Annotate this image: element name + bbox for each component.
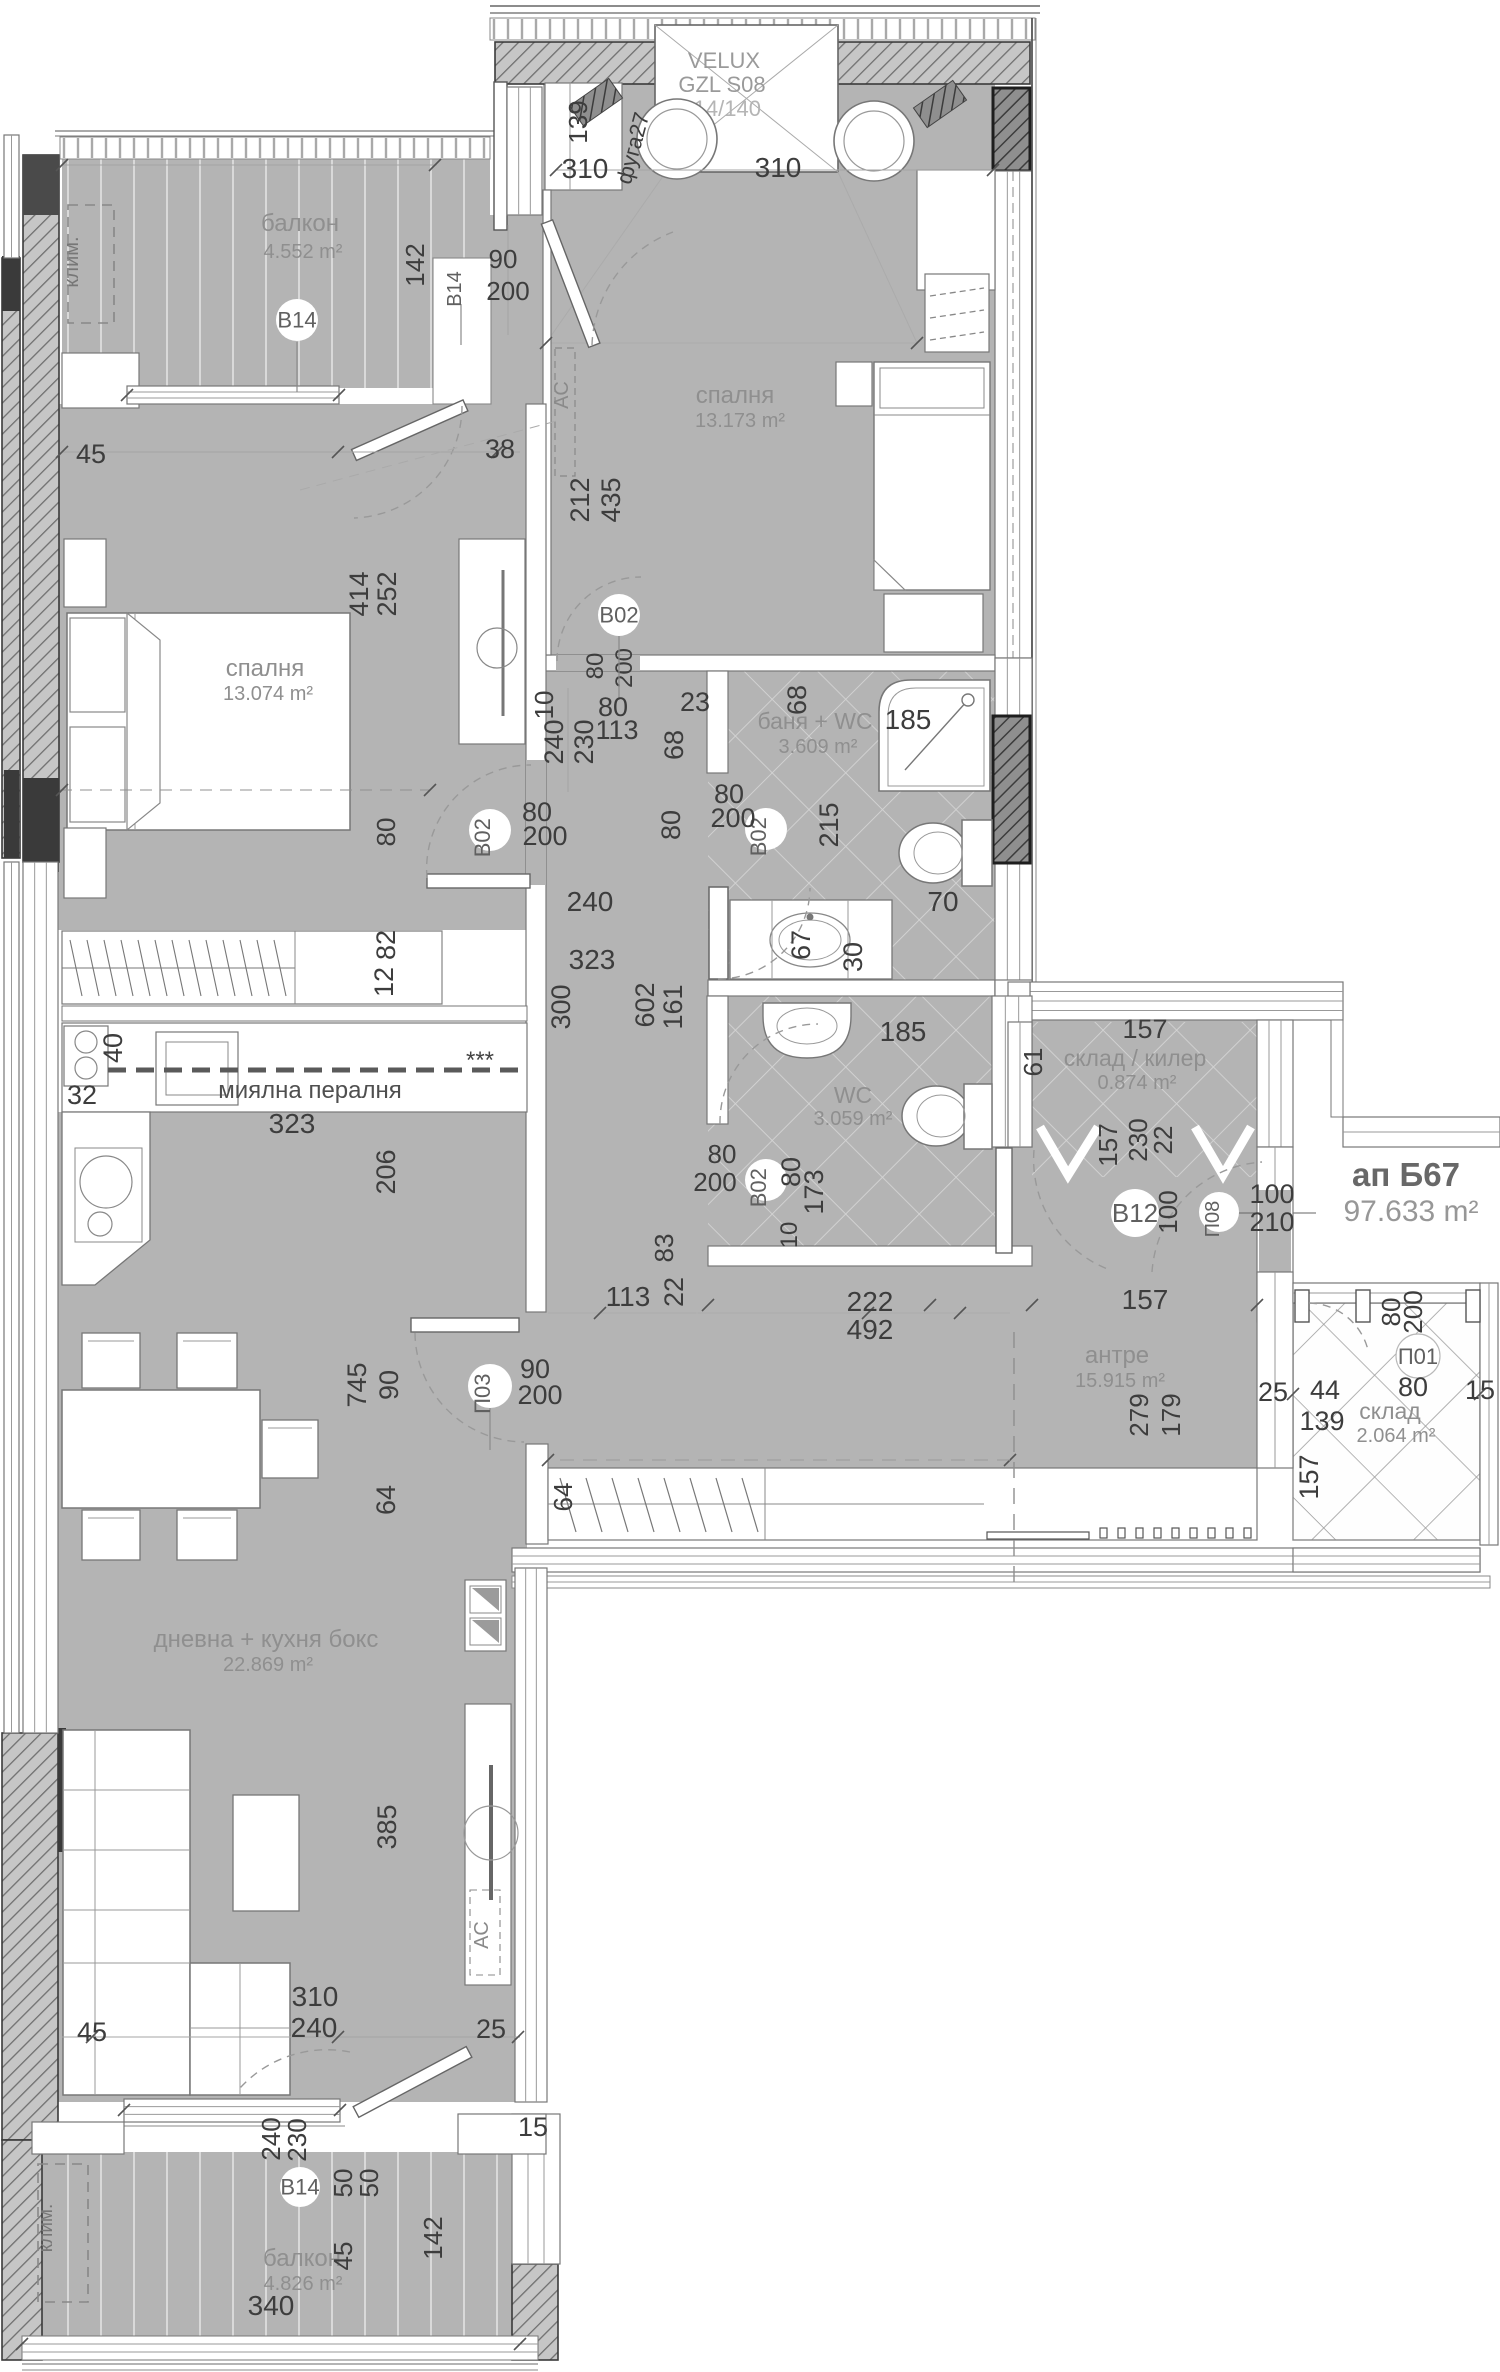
svg-text:61: 61 xyxy=(1018,1048,1048,1077)
svg-text:139: 139 xyxy=(563,100,593,143)
svg-text:340: 340 xyxy=(248,2290,295,2321)
svg-text:310: 310 xyxy=(292,1981,339,2012)
svg-text:***: *** xyxy=(466,1047,494,1074)
svg-text:157: 157 xyxy=(1294,1454,1324,1499)
svg-text:клим.: клим. xyxy=(36,2204,57,2253)
svg-text:222: 222 xyxy=(847,1286,894,1317)
svg-text:44: 44 xyxy=(1310,1375,1340,1405)
svg-text:AC: AC xyxy=(551,381,573,409)
svg-text:83: 83 xyxy=(649,1234,679,1263)
svg-text:спалня: спалня xyxy=(696,382,775,409)
svg-text:25: 25 xyxy=(476,2014,506,2044)
svg-text:3.609 m²: 3.609 m² xyxy=(779,736,858,758)
svg-text:200: 200 xyxy=(611,648,638,688)
svg-text:B14: B14 xyxy=(277,308,316,333)
svg-text:161: 161 xyxy=(658,984,688,1029)
svg-text:0.874 m²: 0.874 m² xyxy=(1098,1072,1177,1094)
svg-text:492: 492 xyxy=(847,1314,894,1345)
svg-text:22: 22 xyxy=(659,1277,689,1307)
svg-text:80: 80 xyxy=(1398,1372,1428,1402)
svg-text:дневна + кухня бокс: дневна + кухня бокс xyxy=(154,1626,379,1653)
svg-text:142: 142 xyxy=(400,243,430,286)
svg-text:25: 25 xyxy=(1258,1377,1288,1407)
svg-text:клим.: клим. xyxy=(61,236,83,287)
svg-text:252: 252 xyxy=(372,571,402,616)
svg-text:П01: П01 xyxy=(1398,1344,1438,1369)
svg-text:240: 240 xyxy=(291,2012,338,2043)
svg-text:179: 179 xyxy=(1156,1393,1186,1436)
svg-text:B02: B02 xyxy=(746,1168,771,1207)
svg-text:100: 100 xyxy=(1249,1179,1294,1209)
svg-text:240: 240 xyxy=(567,886,614,917)
svg-text:10: 10 xyxy=(776,1222,803,1249)
svg-text:200: 200 xyxy=(486,276,529,306)
svg-text:142: 142 xyxy=(418,2216,448,2259)
svg-text:22.869 m²: 22.869 m² xyxy=(223,1654,313,1676)
svg-text:15.915 m²: 15.915 m² xyxy=(1075,1370,1165,1392)
svg-text:80: 80 xyxy=(371,818,401,847)
svg-text:212: 212 xyxy=(565,477,595,522)
svg-text:спалня: спалня xyxy=(226,655,305,682)
svg-text:210: 210 xyxy=(1249,1207,1294,1237)
svg-text:185: 185 xyxy=(880,1016,927,1047)
svg-text:157: 157 xyxy=(1122,1014,1167,1044)
svg-text:323: 323 xyxy=(269,1108,316,1139)
svg-text:279: 279 xyxy=(1124,1393,1154,1436)
svg-text:414: 414 xyxy=(344,571,374,616)
svg-text:П08: П08 xyxy=(1202,1201,1224,1238)
svg-text:157: 157 xyxy=(1093,1123,1123,1166)
svg-text:12: 12 xyxy=(369,967,399,997)
svg-text:97.633 m²: 97.633 m² xyxy=(1343,1195,1478,1228)
svg-text:745: 745 xyxy=(342,1362,372,1407)
svg-text:50: 50 xyxy=(354,2169,384,2198)
svg-text:68: 68 xyxy=(659,730,689,760)
svg-text:VELUX: VELUX xyxy=(688,48,760,73)
svg-text:П03: П03 xyxy=(470,1374,495,1414)
svg-text:38: 38 xyxy=(485,434,515,464)
svg-text:30: 30 xyxy=(838,942,868,972)
svg-text:200: 200 xyxy=(693,1167,736,1197)
svg-text:67: 67 xyxy=(786,930,816,960)
svg-text:173: 173 xyxy=(799,1169,829,1214)
svg-text:385: 385 xyxy=(372,1804,402,1849)
svg-text:602: 602 xyxy=(630,982,660,1027)
svg-text:45: 45 xyxy=(77,2017,107,2047)
svg-text:435: 435 xyxy=(596,477,626,522)
svg-text:GZL S08: GZL S08 xyxy=(678,72,765,97)
svg-text:3.059 m²: 3.059 m² xyxy=(814,1108,893,1130)
svg-text:склад / килер: склад / килер xyxy=(1064,1045,1207,1071)
svg-text:миялна пералня: миялна пералня xyxy=(218,1077,401,1104)
svg-text:B14: B14 xyxy=(280,2175,319,2200)
svg-text:80: 80 xyxy=(582,653,609,680)
svg-text:90: 90 xyxy=(374,1370,404,1400)
svg-text:230: 230 xyxy=(282,2118,312,2161)
svg-text:82: 82 xyxy=(371,930,401,960)
svg-text:113: 113 xyxy=(606,1281,651,1312)
svg-text:23: 23 xyxy=(680,687,710,717)
svg-text:13.074 m²: 13.074 m² xyxy=(223,683,313,705)
svg-text:200: 200 xyxy=(1398,1290,1428,1333)
svg-text:антре: антре xyxy=(1085,1342,1149,1369)
svg-text:90: 90 xyxy=(489,244,518,274)
svg-text:13.173 m²: 13.173 m² xyxy=(695,410,785,432)
svg-text:балкон: балкон xyxy=(261,210,339,237)
svg-text:323: 323 xyxy=(569,944,616,975)
svg-text:200: 200 xyxy=(710,803,755,833)
svg-text:ап Б67: ап Б67 xyxy=(1352,1156,1460,1193)
svg-text:B02: B02 xyxy=(599,603,638,628)
svg-text:B14: B14 xyxy=(444,271,466,307)
svg-text:139: 139 xyxy=(1299,1406,1344,1436)
svg-text:185: 185 xyxy=(885,704,932,735)
svg-text:WC: WC xyxy=(834,1082,872,1108)
svg-text:баня + WC: баня + WC xyxy=(757,708,872,734)
svg-text:200: 200 xyxy=(522,821,567,851)
svg-text:22: 22 xyxy=(1148,1126,1178,1155)
svg-text:215: 215 xyxy=(814,802,844,847)
svg-text:300: 300 xyxy=(546,984,576,1029)
svg-text:45: 45 xyxy=(76,439,106,469)
svg-text:64: 64 xyxy=(371,1485,401,1515)
svg-text:45: 45 xyxy=(328,2242,358,2271)
svg-text:80: 80 xyxy=(708,1139,737,1169)
svg-text:200: 200 xyxy=(517,1380,562,1410)
svg-text:40: 40 xyxy=(98,1033,128,1063)
svg-text:68: 68 xyxy=(782,685,812,715)
svg-text:2.064 m²: 2.064 m² xyxy=(1357,1425,1436,1447)
svg-text:64: 64 xyxy=(548,1483,578,1512)
svg-text:310: 310 xyxy=(562,153,609,184)
svg-text:B02: B02 xyxy=(470,818,495,857)
svg-text:4.552 m²: 4.552 m² xyxy=(264,241,343,263)
svg-text:100: 100 xyxy=(1153,1190,1183,1233)
svg-text:10: 10 xyxy=(529,691,559,720)
svg-text:32: 32 xyxy=(67,1080,97,1110)
svg-text:B12: B12 xyxy=(1112,1198,1158,1228)
svg-text:310: 310 xyxy=(755,152,802,183)
svg-text:157: 157 xyxy=(1122,1284,1169,1315)
svg-text:240: 240 xyxy=(539,719,569,764)
svg-text:113: 113 xyxy=(595,715,638,745)
svg-text:15: 15 xyxy=(1465,1375,1495,1405)
svg-text:15: 15 xyxy=(518,2112,548,2142)
svg-text:206: 206 xyxy=(371,1149,401,1194)
svg-text:70: 70 xyxy=(927,886,958,917)
svg-text:80: 80 xyxy=(656,810,686,840)
svg-text:AC: AC xyxy=(471,1921,493,1949)
